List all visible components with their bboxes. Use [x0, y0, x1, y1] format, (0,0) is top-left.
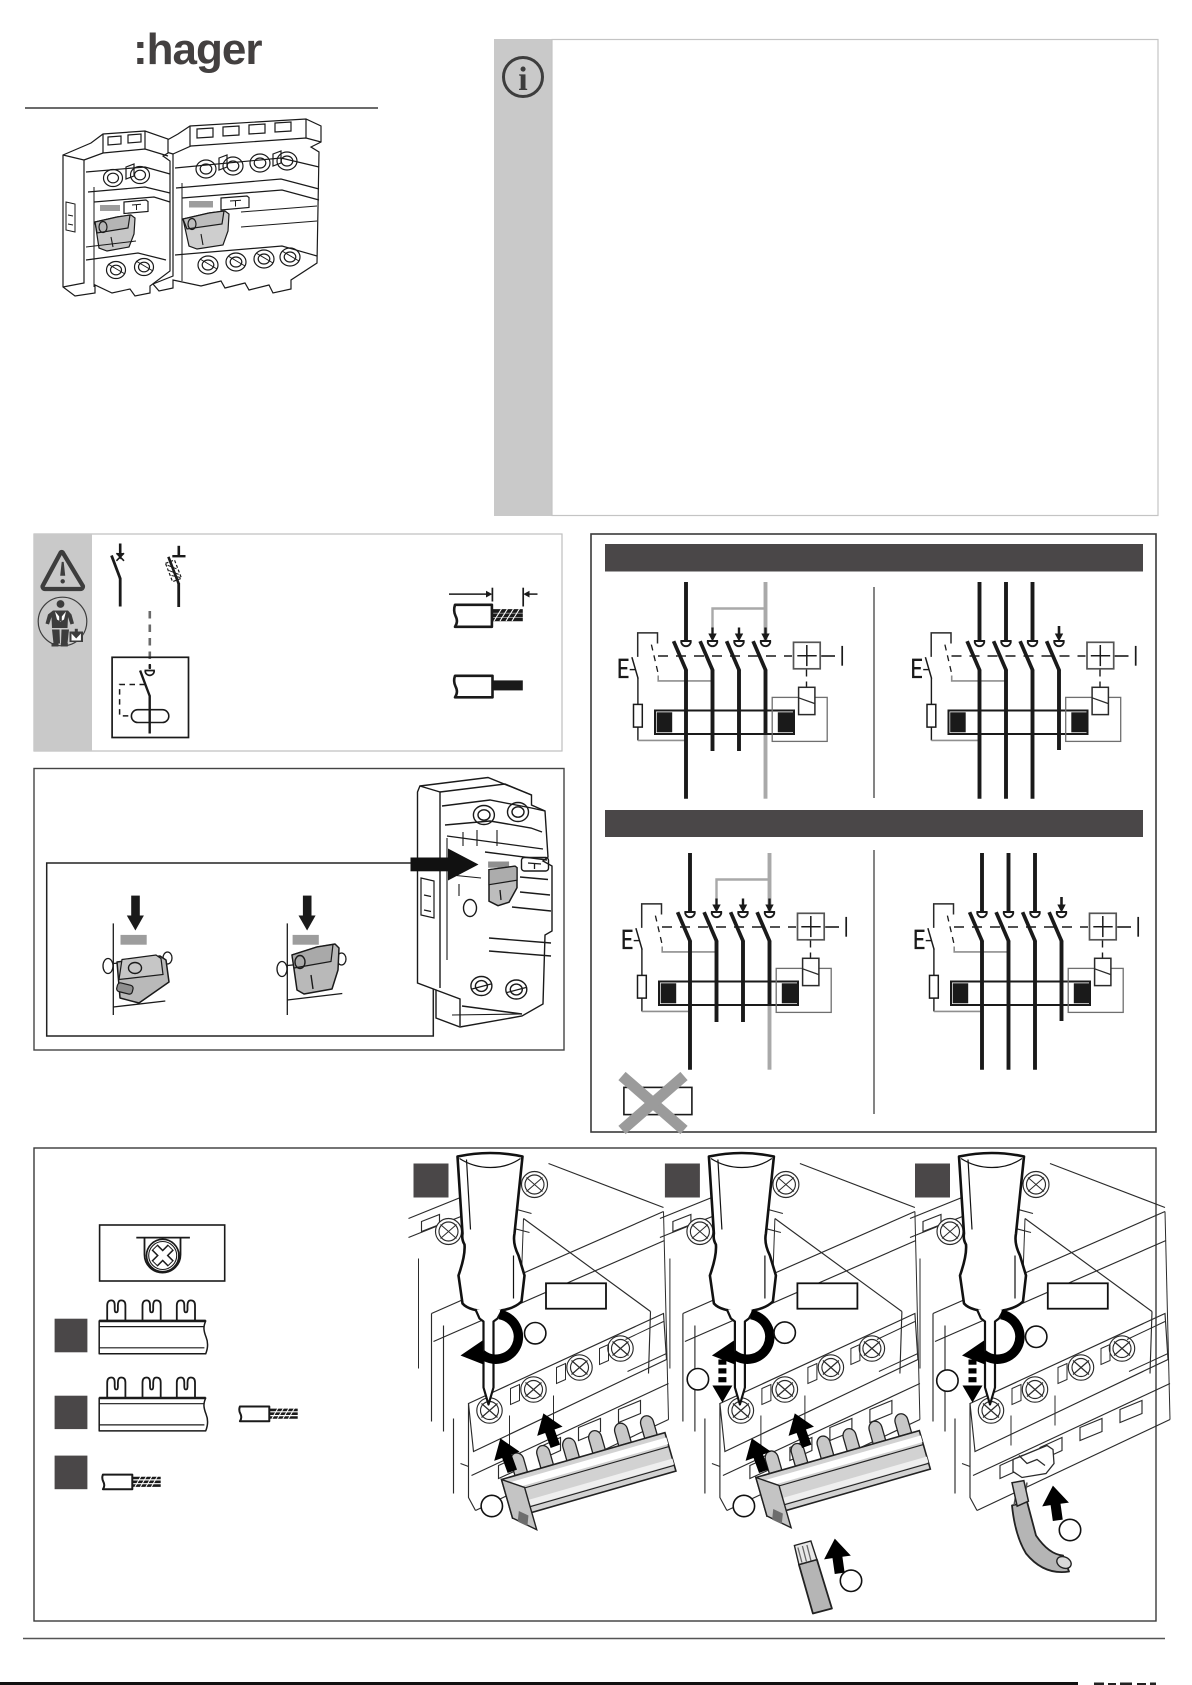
- svg-text::hager: :hager: [133, 25, 262, 74]
- svg-text:i: i: [518, 61, 527, 98]
